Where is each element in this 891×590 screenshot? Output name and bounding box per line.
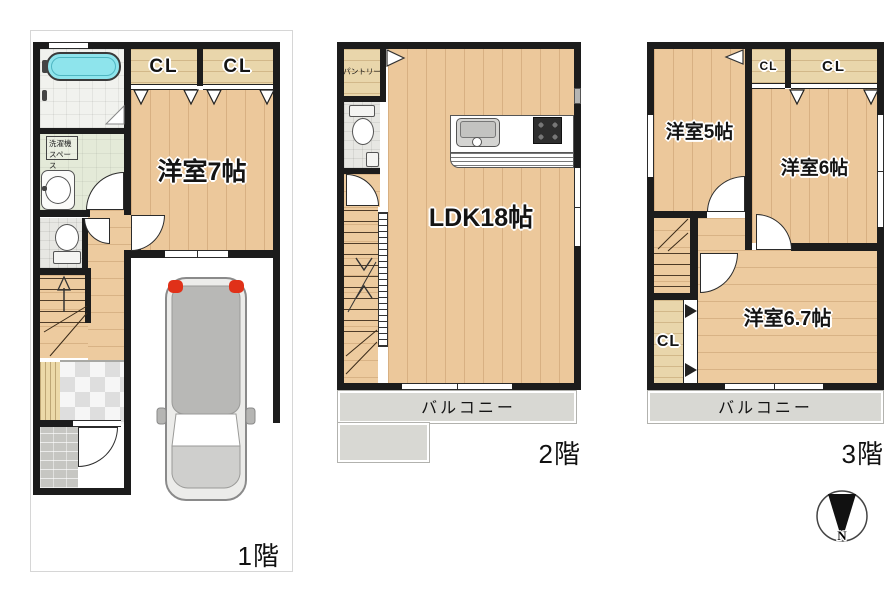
wall <box>654 211 707 218</box>
wall <box>344 168 380 174</box>
bathtub <box>46 52 121 81</box>
room-label-text: パントリー <box>343 66 381 77</box>
laundry-label-line2: スペース <box>49 150 75 172</box>
stair-treads-1f <box>40 278 88 326</box>
bath-faucet <box>42 60 48 73</box>
shoe-cabinet <box>40 362 60 424</box>
room-label-text: バルコニー <box>718 394 813 418</box>
laundry-label-line1: 洗濯機 <box>49 139 75 150</box>
washbasin-faucet <box>42 186 47 191</box>
balcony2-extension <box>337 422 430 463</box>
bedroom67-label: 洋室6.7帖 <box>698 250 877 383</box>
balcony2-label: バルコニー <box>360 390 577 422</box>
floor1-label: 1階 <box>205 536 280 573</box>
floor3-label: 3階 <box>800 434 884 471</box>
bathtub-inner <box>51 57 116 76</box>
room-label-text: バルコニー <box>421 394 516 418</box>
bedroom6-window <box>877 115 884 227</box>
room-label-text: 洋室6.7帖 <box>744 302 832 331</box>
wall <box>40 268 88 275</box>
closet-label-text: CL <box>822 58 846 75</box>
wall <box>124 364 131 495</box>
closet-wide-label: CL <box>791 49 877 83</box>
compass-north-label: N <box>837 528 847 543</box>
toilet2-tank <box>349 105 375 117</box>
closet-left-label: CL <box>131 49 197 84</box>
bathroom-window <box>49 42 88 49</box>
laundry-space-label: 洗濯機 スペース <box>46 136 78 160</box>
toilet-bowl <box>55 224 79 251</box>
wall <box>647 42 884 49</box>
bedroom5-window <box>647 115 654 177</box>
balcony3-door <box>725 383 823 390</box>
wall <box>40 128 124 134</box>
closet-label-text: CL <box>223 56 252 78</box>
closet-side-label: CL <box>650 300 687 383</box>
stair-treads-2f <box>344 210 378 340</box>
room-label-text: 洋室6帖 <box>781 153 849 180</box>
balcony3-label: バルコニー <box>647 390 884 422</box>
closet-label-text: CL <box>657 333 680 351</box>
shower-fixture <box>42 90 47 101</box>
wall <box>337 42 344 390</box>
entrance-porch-tiles <box>40 427 78 488</box>
floor2-label: 2階 <box>500 434 581 471</box>
closet-label-text: CL <box>760 59 778 73</box>
wall <box>124 250 131 364</box>
closet-right-label: CL <box>203 49 273 84</box>
hall3-floor <box>698 218 745 250</box>
entrance-genkan-tiles <box>60 362 124 424</box>
closet-small-label: CL <box>752 49 785 83</box>
room-label-text: LDK18帖 <box>429 198 533 234</box>
ldk-side-window <box>574 168 581 246</box>
genkan-step-line <box>60 360 124 362</box>
high-window <box>574 88 581 104</box>
closet-label-text: CL <box>149 56 178 78</box>
wall <box>337 42 581 49</box>
wall <box>344 96 386 102</box>
wall <box>273 42 280 423</box>
floorplan-canvas: 洗濯機 スペース CL CL 洋室7帖 1階 パントリー LDK18帖 バルコニ… <box>0 0 891 590</box>
north-arrow <box>828 494 856 540</box>
entrance-door-opening <box>73 420 121 427</box>
compass-icon: N <box>817 491 867 543</box>
balcony2-door <box>402 383 512 390</box>
pantry-label: パントリー <box>341 49 383 93</box>
stair-treads-3f <box>654 253 690 293</box>
wall <box>33 42 40 495</box>
wall <box>745 42 752 250</box>
toilet2-bowl <box>352 118 374 145</box>
toilet-tank <box>53 251 81 264</box>
wall <box>647 293 698 300</box>
wall <box>33 420 73 427</box>
stair-railing <box>378 212 388 347</box>
bedroom7-label: 洋室7帖 <box>131 90 273 250</box>
wall <box>40 210 90 217</box>
room-label-text: 洋室5帖 <box>666 117 734 144</box>
bedroom7-window <box>165 250 228 258</box>
wall <box>85 268 91 323</box>
washbasin-bowl <box>45 176 71 204</box>
toilet2-corner-basin <box>366 152 379 167</box>
ldk-label: LDK18帖 <box>388 49 574 383</box>
wall <box>124 42 131 215</box>
bedroom6-label: 洋室6帖 <box>752 89 877 243</box>
wall <box>33 488 131 495</box>
room-label-text: 洋室7帖 <box>158 152 247 188</box>
wall <box>690 213 698 300</box>
bedroom5-label: 洋室5帖 <box>654 49 745 211</box>
